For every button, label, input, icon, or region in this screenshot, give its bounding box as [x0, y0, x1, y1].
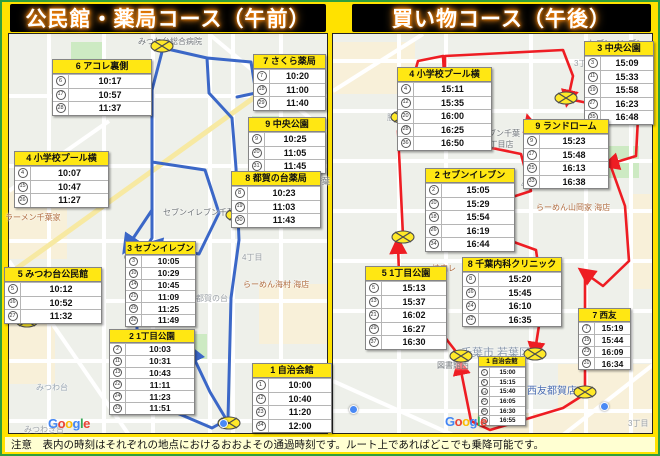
stop-name: 8 千葉内科クリニック [463, 258, 561, 272]
stop-sequence-number: 5 [369, 283, 379, 293]
passing-time: 15:29 [442, 198, 514, 211]
stop-name: 5 みつわ台公民館 [5, 268, 101, 282]
timetable-row: 1715:48 [524, 148, 608, 162]
google-logo: Google [48, 416, 90, 431]
timetable-row: 1911:03 [232, 200, 320, 214]
map-place-label: みつわ台 [36, 382, 68, 393]
passing-time: 10:20 [270, 70, 325, 83]
stop-sequence-number: 26 [429, 226, 439, 236]
map-place-label: ラーメン千葉家 [5, 212, 61, 223]
timetable-row: 3211:49 [126, 314, 195, 326]
stop-sequence-number: 4 [401, 84, 411, 94]
timetable-row: 1815:54 [426, 210, 514, 224]
passing-time: 10:25 [265, 133, 325, 146]
bus-stop-marker-icon [449, 349, 473, 363]
stop-sequence-number: 10 [429, 199, 439, 209]
passing-time: 11:43 [248, 214, 320, 227]
timetable-row: 2111:09 [126, 290, 195, 302]
stop-sequence-number: 12 [256, 394, 266, 404]
stop-sequence-number: 14 [129, 280, 138, 289]
passing-time: 15:35 [414, 97, 491, 110]
stop-timetable-5: 5 1丁目公園515:131315:372116:022916:273716:3… [365, 266, 447, 350]
stop-sequence-number: 28 [56, 103, 66, 113]
timetable-row: 2411:23 [110, 390, 194, 402]
timetable-row: 2611:27 [15, 193, 108, 207]
stop-sequence-number: 22 [113, 380, 122, 389]
passing-time: 16:19 [442, 225, 514, 238]
stop-timetable-9: 9 ランドローム915:231715:482516:133316:38 [523, 119, 609, 189]
stop-sequence-number: 5 [8, 284, 18, 294]
stop-sequence-number: 24 [466, 301, 476, 311]
stop-sequence-number: 24 [113, 392, 122, 401]
stop-sequence-number: 31 [582, 359, 591, 368]
bus-stop-marker-icon [573, 385, 597, 399]
timetable-row: 1115:33 [585, 70, 653, 84]
map-place-label: 3丁目 [628, 418, 648, 429]
stop-name: 7 西友 [579, 309, 630, 322]
timetable-row: 2016:00 [398, 109, 491, 123]
stop-name: 2 セブンイレブン [426, 169, 514, 183]
passing-time: 15:23 [540, 135, 608, 148]
timetable-row: 2211:11 [110, 378, 194, 390]
timetable-row: 3616:50 [398, 136, 491, 150]
passing-time: 10:57 [69, 89, 151, 102]
stop-sequence-number: 34 [256, 421, 266, 431]
timetable-row: 3116:34 [579, 357, 630, 369]
timetable-row: 1710:57 [53, 88, 151, 102]
stop-sequence-number: 21 [129, 292, 138, 301]
stop-timetable-1: 1 自治会館110:001210:402311:203412:00 [252, 363, 332, 433]
passing-time: 16:44 [442, 238, 514, 251]
stop-timetable-8: 8 都賀の台薬局810:231911:033011:43 [231, 171, 321, 228]
map-poi-pin-icon [349, 405, 358, 414]
stop-name: 6 アコレ裏側 [53, 60, 151, 74]
timetable-row: 310:05 [126, 255, 195, 267]
timetable-row: 815:20 [463, 272, 561, 286]
stop-timetable-3: 3 中央公園315:091115:331915:582716:233516:48 [584, 41, 654, 125]
passing-time: 10:00 [269, 379, 331, 392]
stop-name: 9 ランドローム [524, 120, 608, 134]
timetable-row: 215:05 [426, 183, 514, 197]
stop-sequence-number: 19 [235, 202, 245, 212]
passing-time: 10:31 [126, 356, 194, 367]
timetable-row: 1811:00 [254, 83, 325, 97]
passing-time: 16:30 [490, 407, 525, 416]
timetable-row: 2011:05 [249, 146, 325, 160]
timetable-row: 3216:35 [463, 313, 561, 327]
timetable-row: 1410:45 [126, 279, 195, 291]
stop-sequence-number: 34 [429, 239, 439, 249]
timetable-row: 1615:45 [463, 286, 561, 300]
stop-name: 8 都賀の台薬局 [232, 172, 320, 186]
timetable-row: 2216:05 [479, 396, 525, 406]
stop-name: 3 中央公園 [585, 42, 653, 56]
passing-time: 11:20 [269, 406, 331, 419]
timetable-row: 710:20 [254, 69, 325, 83]
passing-time: 15:44 [595, 335, 630, 346]
passing-time: 15:33 [601, 71, 653, 84]
map-poi-pin-icon [600, 402, 609, 411]
passing-time: 16:09 [595, 347, 630, 358]
passing-time: 15:20 [479, 273, 561, 286]
stop-timetable-8: 8 千葉内科クリニック815:201615:452416:103216:35 [462, 257, 562, 327]
bus-stop-marker-icon [391, 230, 415, 244]
footer-note: 注意 表内の時刻はそれぞれの地点におけるおおよその通過時刻です。ルート上であれば… [5, 437, 655, 452]
passing-time: 15:54 [442, 211, 514, 224]
timetable-row: 610:17 [53, 74, 151, 88]
stop-sequence-number: 13 [113, 368, 122, 377]
passing-time: 15:37 [382, 296, 446, 309]
passing-time: 15:09 [601, 57, 653, 70]
passing-time: 15:11 [414, 83, 491, 96]
google-logo-letter: o [462, 414, 469, 429]
passing-time: 11:03 [248, 201, 320, 214]
passing-time: 10:47 [31, 181, 108, 194]
passing-time: 11:32 [21, 310, 101, 323]
stop-name: 3 セブンイレブン [126, 242, 195, 255]
passing-time: 10:12 [21, 283, 101, 296]
stop-name: 2 1丁目公園 [110, 330, 194, 343]
stop-sequence-number: 6 [481, 379, 488, 386]
timetable-row: 915:23 [524, 134, 608, 148]
timetable-row: 715:19 [579, 322, 630, 334]
passing-time: 16:50 [414, 137, 491, 150]
passing-time: 11:37 [69, 102, 151, 115]
passing-time: 11:40 [270, 97, 325, 110]
passing-time: 15:15 [490, 378, 525, 387]
stop-sequence-number: 17 [56, 90, 66, 100]
stop-name: 5 1丁目公園 [366, 267, 446, 281]
passing-time: 15:13 [382, 282, 446, 295]
passing-time: 16:38 [540, 176, 608, 189]
stop-sequence-number: 3 [129, 257, 138, 266]
google-logo-letter: e [83, 416, 90, 431]
timetable-row: 1315:37 [366, 295, 446, 309]
passing-time: 11:25 [142, 303, 195, 314]
timetable-row: 410:07 [15, 166, 108, 180]
stop-timetable-2: 2 セブンイレブン215:051015:291815:542616:193416… [425, 168, 515, 252]
passing-time: 11:00 [270, 84, 325, 97]
passing-time: 10:17 [69, 75, 151, 88]
stop-sequence-number: 37 [369, 337, 379, 347]
stop-name: 4 小学校プール横 [15, 152, 108, 166]
timetable-row: 1510:47 [15, 180, 108, 194]
passing-time: 15:19 [595, 323, 630, 334]
stop-sequence-number: 19 [588, 85, 598, 95]
google-logo: Google [445, 414, 487, 429]
stop-sequence-number: 15 [18, 182, 28, 192]
stop-sequence-number: 25 [527, 163, 537, 173]
stop-sequence-number: 36 [401, 138, 411, 148]
timetable-row: 2916:27 [366, 322, 446, 336]
bus-stop-marker-icon [554, 91, 578, 105]
stop-sequence-number: 6 [56, 76, 66, 86]
stop-sequence-number: 20 [401, 111, 411, 121]
timetable-row: 615:15 [479, 377, 525, 387]
map-place-label: 西友都賀店 [527, 382, 577, 397]
passing-time: 16:27 [382, 323, 446, 336]
map-place-label: 4丁目 [242, 252, 262, 263]
passing-time: 10:40 [269, 393, 331, 406]
timetable-row: 810:23 [232, 186, 320, 200]
stop-sequence-number: 4 [18, 168, 28, 178]
stop-sequence-number: 33 [527, 177, 537, 187]
map-place-label: らーめん山岡家 海店 [536, 202, 610, 213]
passing-time: 16:35 [479, 314, 561, 327]
timetable-row: 2816:25 [398, 123, 491, 137]
stop-sequence-number: 7 [257, 71, 267, 81]
stop-sequence-number: 8 [466, 274, 476, 284]
timetable-row: 3412:00 [253, 419, 331, 433]
stop-timetable-9: 9 中央公園910:252011:053111:45 [248, 117, 326, 174]
stop-sequence-number: 26 [18, 195, 28, 205]
timetable-row: 2116:02 [366, 308, 446, 322]
timetable-row: 1210:40 [253, 392, 331, 406]
passing-time: 10:45 [142, 280, 195, 291]
google-logo-letter: G [48, 416, 58, 431]
map-annotations-layer: みつわ台総合病院の台5丁目3丁目千葉若葉ラーメン千葉家セブンイレブン千葉4丁目ら… [0, 0, 660, 456]
timetable-row: 910:25 [249, 132, 325, 146]
stop-sequence-number: 20 [252, 148, 262, 158]
timetable-row: 415:11 [398, 82, 491, 96]
passing-time: 15:58 [601, 84, 653, 97]
stop-timetable-4: 4 小学校プール横410:071510:472611:27 [14, 151, 109, 208]
timetable-row: 1215:35 [398, 96, 491, 110]
passing-time: 11:23 [126, 391, 194, 402]
timetable-row: 510:12 [5, 282, 101, 296]
passing-time: 16:25 [414, 124, 491, 137]
left-course-title: 公民館・薬局コース（午前） [10, 4, 326, 32]
stop-sequence-number: 22 [481, 398, 488, 405]
google-logo-letter: g [470, 414, 477, 429]
map-place-label: 都賀の台 [196, 293, 228, 304]
passing-time: 11:27 [31, 194, 108, 207]
stop-sequence-number: 27 [8, 311, 18, 321]
stop-sequence-number: 1 [481, 369, 488, 376]
stop-name: 4 小学校プール横 [398, 68, 491, 82]
timetable-row: 115:00 [479, 367, 525, 377]
stop-timetable-7: 7 さくら薬局710:201811:002911:40 [253, 54, 326, 111]
stop-sequence-number: 33 [113, 404, 122, 413]
google-logo-letter: o [58, 416, 65, 431]
stop-name: 7 さくら薬局 [254, 55, 325, 69]
timetable-row: 2616:19 [426, 224, 514, 238]
stop-sequence-number: 10 [129, 269, 138, 278]
passing-time: 15:48 [540, 149, 608, 162]
timetable-row: 2516:13 [524, 161, 608, 175]
stop-sequence-number: 9 [527, 136, 537, 146]
timetable-row: 3416:44 [426, 237, 514, 251]
stop-sequence-number: 30 [235, 215, 245, 225]
stop-timetable-3: 3 セブンイレブン310:051010:291410:452111:092511… [125, 241, 196, 327]
passing-time: 10:23 [248, 187, 320, 200]
timetable-row: 1515:44 [579, 334, 630, 346]
stop-sequence-number: 1 [256, 380, 266, 390]
passing-time: 16:30 [382, 336, 446, 349]
timetable-row: 3316:38 [524, 175, 608, 189]
stop-sequence-number: 25 [129, 304, 138, 313]
timetable-row: 2311:20 [253, 405, 331, 419]
stop-sequence-number: 23 [256, 407, 266, 417]
stop-sequence-number: 21 [369, 310, 379, 320]
stop-sequence-number: 2 [429, 185, 439, 195]
timetable-row: 2711:32 [5, 309, 101, 323]
stop-name: 1 自治会館 [479, 357, 525, 367]
timetable-row: 2316:09 [579, 346, 630, 358]
stop-timetable-2: 2 1丁目公園210:031110:311310:432211:112411:2… [109, 329, 195, 415]
passing-time: 10:29 [142, 268, 195, 279]
timetable-row: 1415:40 [479, 386, 525, 396]
stop-timetable-5: 5 みつわ台公民館510:121610:522711:32 [4, 267, 102, 324]
stop-sequence-number: 16 [466, 288, 476, 298]
stop-sequence-number: 16 [8, 298, 18, 308]
google-logo-letter: e [480, 414, 487, 429]
passing-time: 16:02 [382, 309, 446, 322]
timetable-row: 1015:29 [426, 197, 514, 211]
stop-sequence-number: 18 [429, 212, 439, 222]
timetable-row: 1310:43 [110, 367, 194, 379]
stop-sequence-number: 7 [582, 324, 591, 333]
stop-sequence-number: 32 [466, 315, 476, 325]
stop-sequence-number: 11 [113, 357, 122, 366]
stop-sequence-number: 17 [527, 150, 537, 160]
stop-sequence-number: 12 [401, 98, 411, 108]
timetable-row: 1010:29 [126, 267, 195, 279]
timetable-row: 210:03 [110, 343, 194, 355]
stop-sequence-number: 31 [252, 161, 262, 171]
map-poi-pin-icon [219, 419, 228, 428]
google-logo-letter: o [455, 414, 462, 429]
stop-sequence-number: 11 [588, 72, 598, 82]
stop-timetable-7: 7 西友715:191515:442316:093116:34 [578, 308, 631, 370]
passing-time: 16:55 [490, 416, 525, 425]
right-course-title: 買い物コース（午後） [352, 4, 651, 32]
stop-timetable-6: 6 アコレ裏側610:171710:572811:37 [52, 59, 152, 116]
timetable-row: 2511:25 [126, 302, 195, 314]
passing-time: 16:05 [490, 397, 525, 406]
stop-sequence-number: 28 [401, 125, 411, 135]
passing-time: 16:34 [595, 358, 630, 369]
stop-sequence-number: 29 [369, 324, 379, 334]
passing-time: 15:05 [442, 184, 514, 197]
passing-time: 16:00 [414, 110, 491, 123]
stop-name: 9 中央公園 [249, 118, 325, 132]
passing-time: 16:10 [479, 300, 561, 313]
passing-time: 16:23 [601, 98, 653, 111]
stop-sequence-number: 23 [582, 347, 591, 356]
passing-time: 10:05 [142, 256, 195, 267]
passing-time: 11:09 [142, 291, 195, 302]
timetable-row: 2416:10 [463, 299, 561, 313]
google-logo-letter: g [73, 416, 80, 431]
stop-sequence-number: 27 [588, 99, 598, 109]
passing-time: 10:43 [126, 368, 194, 379]
stop-sequence-number: 8 [235, 188, 245, 198]
passing-time: 12:00 [269, 420, 331, 433]
passing-time: 10:52 [21, 297, 101, 310]
passing-time: 11:11 [126, 379, 194, 390]
passing-time: 15:00 [490, 368, 525, 377]
stop-sequence-number: 15 [582, 336, 591, 345]
stop-sequence-number: 29 [257, 98, 267, 108]
stop-sequence-number: 2 [113, 345, 122, 354]
timetable-row: 3311:51 [110, 402, 194, 414]
timetable-row: 110:00 [253, 378, 331, 392]
passing-time: 11:51 [126, 403, 194, 414]
timetable-row: 1110:31 [110, 355, 194, 367]
passing-time: 11:49 [142, 315, 195, 326]
bus-stop-marker-icon [523, 347, 547, 361]
map-place-label: らーめん海村 海店 [243, 279, 309, 290]
timetable-row: 2911:40 [254, 96, 325, 110]
passing-time: 16:13 [540, 162, 608, 175]
timetable-row: 1610:52 [5, 296, 101, 310]
stop-sequence-number: 32 [129, 316, 138, 325]
passing-time: 11:05 [265, 147, 325, 160]
google-logo-letter: G [445, 414, 455, 429]
stop-sequence-number: 14 [481, 388, 488, 395]
timetable-row: 3011:43 [232, 213, 320, 227]
passing-time: 10:03 [126, 344, 194, 355]
stop-sequence-number: 18 [257, 85, 267, 95]
timetable-row: 3716:30 [366, 335, 446, 349]
google-logo-letter: o [65, 416, 72, 431]
passing-time: 15:40 [490, 387, 525, 396]
timetable-row: 515:13 [366, 281, 446, 295]
timetable-row: 315:09 [585, 56, 653, 70]
timetable-row: 2811:37 [53, 101, 151, 115]
timetable-row: 2716:23 [585, 97, 653, 111]
bus-stop-marker-icon [150, 39, 174, 53]
stop-name: 1 自治会館 [253, 364, 331, 378]
stop-sequence-number: 9 [252, 134, 262, 144]
passing-time: 15:45 [479, 287, 561, 300]
stop-sequence-number: 13 [369, 297, 379, 307]
passing-time: 10:07 [31, 167, 108, 180]
timetable-row: 1915:58 [585, 83, 653, 97]
stop-timetable-4: 4 小学校プール横415:111215:352016:002816:253616… [397, 67, 492, 151]
stop-sequence-number: 3 [588, 58, 598, 68]
